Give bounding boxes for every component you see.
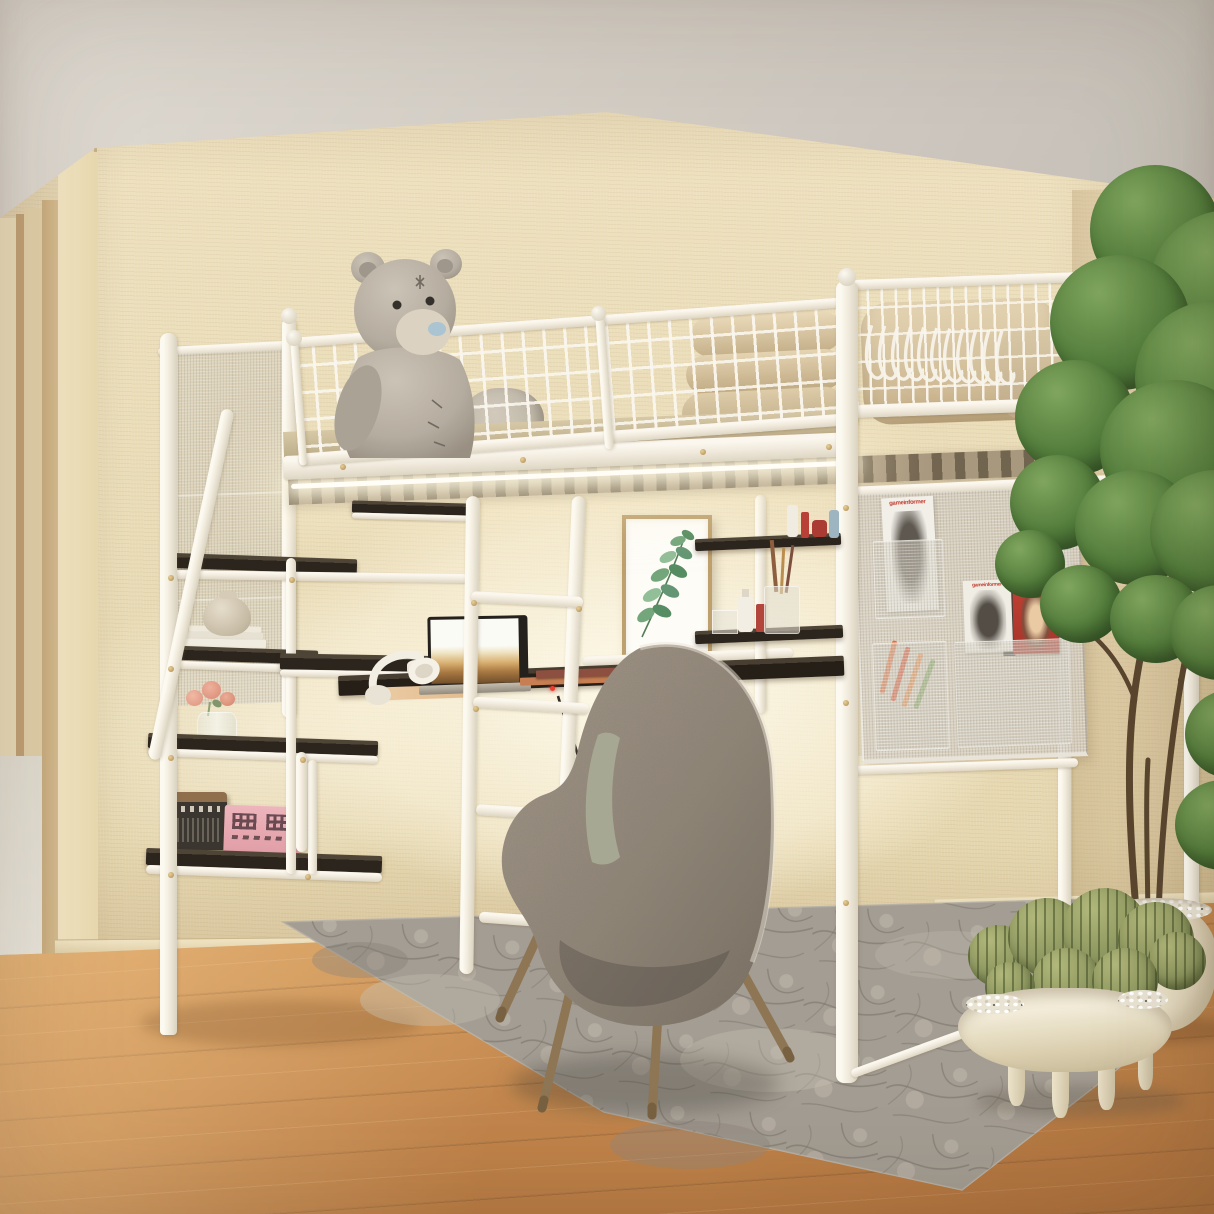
- corner-post-front-right: [836, 281, 858, 1083]
- stair-bolt-4: [168, 755, 174, 761]
- pump-top: [742, 589, 749, 597]
- stair-support-low: [308, 760, 317, 874]
- post-bolt-2: [843, 700, 849, 706]
- ladder-bolt-1: [471, 600, 477, 606]
- stair-bolt-2: [289, 577, 295, 583]
- vase-rim: [219, 591, 237, 599]
- vase: [203, 596, 251, 636]
- stair-bolt-5: [300, 757, 306, 763]
- front-rail-divider: [595, 311, 614, 450]
- stair-support-mid: [286, 558, 296, 874]
- rose-2: [202, 681, 221, 699]
- stair-bolt-1: [168, 575, 174, 581]
- left-panel-seam: [178, 491, 286, 497]
- bowl-pebbles-right: [1118, 990, 1168, 1009]
- headphones: [358, 645, 453, 705]
- stair-bolt-6: [168, 872, 174, 878]
- rose-1: [186, 690, 203, 706]
- lounge-chair: [480, 610, 810, 1130]
- cosmetic-white-tube: [787, 505, 798, 537]
- post-bolt-1: [843, 505, 849, 511]
- post-bolt-3: [843, 900, 849, 906]
- bowl-pebbles-left: [966, 994, 1024, 1014]
- ladder-bolt-3: [473, 706, 479, 712]
- front-rail-left-finial: [286, 330, 302, 346]
- pocket-front-pens: [872, 641, 950, 752]
- front-rail-mid-finial: [591, 306, 606, 321]
- magazine-title-top: gameinformer: [881, 499, 933, 508]
- radio-buttons: [172, 806, 220, 812]
- beam-bolt-3: [700, 449, 706, 455]
- cactus-bowl-shadow: [975, 1085, 1185, 1117]
- stair-bolt-3: [168, 666, 174, 672]
- beam-bolt-2: [520, 457, 526, 463]
- pink-box-label: [232, 835, 290, 841]
- cosmetic-red-tube: [801, 512, 809, 538]
- corner-post-finial: [838, 268, 856, 286]
- pink-box-pattern-left: [232, 813, 257, 830]
- left-post-finial: [281, 308, 297, 324]
- pocket-front-top: [873, 539, 946, 619]
- bowl-leg-2: [1052, 1066, 1069, 1118]
- tree-foliage-11: [1040, 565, 1122, 643]
- cosmetic-blue-bottle: [829, 510, 839, 538]
- cosmetic-red-jar: [812, 520, 827, 537]
- teddy-bear: [320, 240, 500, 475]
- handrail-end-post: [296, 752, 307, 852]
- beam-bolt-4: [826, 444, 832, 450]
- rose-3: [220, 692, 235, 706]
- room-photo: gameinformer gameinformer Men's Health: [0, 0, 1214, 1214]
- stair-bolt-7: [305, 874, 311, 880]
- radio-speaker: [172, 818, 220, 842]
